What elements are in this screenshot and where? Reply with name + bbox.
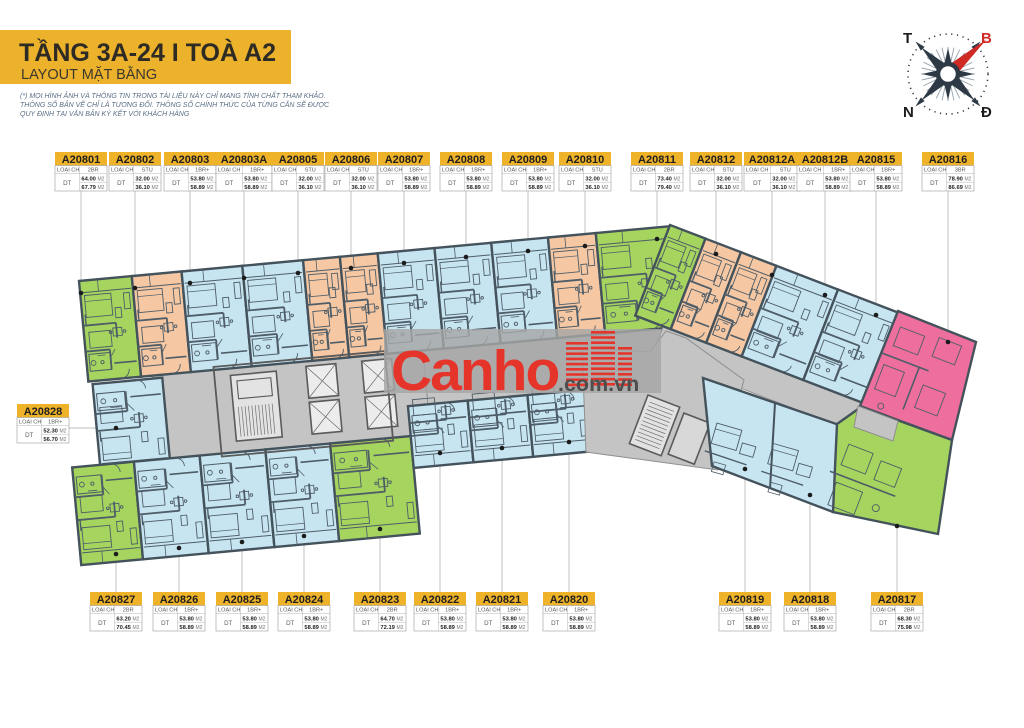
svg-text:32.00 M2: 32.00 M2 <box>716 176 739 182</box>
svg-text:DT: DT <box>510 180 518 187</box>
svg-text:LOẠI CH: LOẠI CH <box>274 168 296 174</box>
svg-text:A20812: A20812 <box>697 154 736 166</box>
svg-text:78.90 M2: 78.90 M2 <box>948 176 971 182</box>
svg-text:58.89 M2: 58.89 M2 <box>745 625 768 631</box>
svg-text:DT: DT <box>63 180 71 187</box>
svg-text:STU: STU <box>142 168 153 174</box>
svg-text:1BR+: 1BR+ <box>533 168 547 174</box>
svg-text:LOẠI CH: LOẠI CH <box>166 168 188 174</box>
svg-text:58.89 M2: 58.89 M2 <box>466 185 489 191</box>
svg-text:LOẠI CH: LOẠI CH <box>356 608 378 614</box>
svg-text:72.19 M2: 72.19 M2 <box>380 625 403 631</box>
svg-text:58.89 M2: 58.89 M2 <box>244 185 267 191</box>
svg-text:DT: DT <box>551 620 559 627</box>
svg-text:58.89 M2: 58.89 M2 <box>825 185 848 191</box>
svg-text:67.79 M2: 67.79 M2 <box>81 185 104 191</box>
svg-text:1BR+: 1BR+ <box>471 168 485 174</box>
svg-text:64.00 M2: 64.00 M2 <box>81 176 104 182</box>
svg-text:58.89 M2: 58.89 M2 <box>528 185 551 191</box>
svg-text:DT: DT <box>639 180 647 187</box>
svg-text:STU: STU <box>358 168 369 174</box>
svg-text:58.89 M2: 58.89 M2 <box>304 625 327 631</box>
svg-text:Canho: Canho <box>391 339 559 403</box>
svg-text:2BR: 2BR <box>123 608 134 614</box>
svg-text:1BR+: 1BR+ <box>831 168 845 174</box>
svg-text:A20818: A20818 <box>791 594 830 606</box>
svg-text:58.89 M2: 58.89 M2 <box>190 185 213 191</box>
svg-text:A20824: A20824 <box>285 594 324 606</box>
svg-text:A20820: A20820 <box>550 594 589 606</box>
svg-text:64.70 M2: 64.70 M2 <box>380 616 403 622</box>
svg-text:DT: DT <box>25 432 33 439</box>
svg-text:A20819: A20819 <box>726 594 765 606</box>
svg-text:73.40 M2: 73.40 M2 <box>657 176 680 182</box>
svg-text:A20821: A20821 <box>483 594 522 606</box>
svg-text:63.20 M2: 63.20 M2 <box>116 616 139 622</box>
svg-text:53.80 M2: 53.80 M2 <box>304 616 327 622</box>
svg-text:53.80 M2: 53.80 M2 <box>179 616 202 622</box>
svg-text:1BR+: 1BR+ <box>309 608 323 614</box>
svg-text:A20801: A20801 <box>62 154 101 166</box>
svg-text:2BR: 2BR <box>88 168 99 174</box>
svg-text:A20805: A20805 <box>279 154 318 166</box>
svg-text:LOẠI CH: LOẠI CH <box>327 168 349 174</box>
svg-text:THÔNG SỐ BẢN VẼ CHỈ LÀ TƯƠNG Đ: THÔNG SỐ BẢN VẼ CHỈ LÀ TƯƠNG ĐỐI. THÔNG … <box>20 100 330 109</box>
svg-text:A20825: A20825 <box>223 594 262 606</box>
svg-text:58.89 M2: 58.89 M2 <box>569 625 592 631</box>
svg-text:LOẠI CH: LOẠI CH <box>924 168 946 174</box>
svg-text:70.45 M2: 70.45 M2 <box>116 625 139 631</box>
svg-text:53.80 M2: 53.80 M2 <box>810 616 833 622</box>
svg-text:STU: STU <box>723 168 734 174</box>
svg-text:1BR+: 1BR+ <box>445 608 459 614</box>
svg-text:LOẠI CH: LOẠI CH <box>57 168 79 174</box>
svg-text:DT: DT <box>727 620 735 627</box>
svg-text:3BR: 3BR <box>955 168 966 174</box>
svg-text:1BR+: 1BR+ <box>507 608 521 614</box>
svg-text:DT: DT <box>567 180 575 187</box>
svg-text:DT: DT <box>858 180 866 187</box>
svg-text:32.00 M2: 32.00 M2 <box>298 176 321 182</box>
svg-text:A20823: A20823 <box>361 594 400 606</box>
svg-text:LOẠI CH: LOẠI CH <box>280 608 302 614</box>
svg-text:53.80 M2: 53.80 M2 <box>825 176 848 182</box>
svg-text:A20822: A20822 <box>421 594 460 606</box>
svg-text:DT: DT <box>117 180 125 187</box>
svg-text:1BR+: 1BR+ <box>195 168 209 174</box>
svg-text:53.80 M2: 53.80 M2 <box>242 616 265 622</box>
svg-text:T: T <box>903 30 912 47</box>
svg-text:DT: DT <box>753 180 761 187</box>
svg-text:DT: DT <box>484 620 492 627</box>
svg-text:1BR+: 1BR+ <box>184 608 198 614</box>
svg-text:DT: DT <box>448 180 456 187</box>
svg-text:DT: DT <box>698 180 706 187</box>
svg-text:LOẠI CH: LOẠI CH <box>416 608 438 614</box>
svg-text:1BR+: 1BR+ <box>750 608 764 614</box>
svg-text:LOẠI CH: LOẠI CH <box>504 168 526 174</box>
svg-text:LAYOUT MẶT BẰNG: LAYOUT MẶT BẰNG <box>21 65 157 83</box>
svg-text:LOẠI CH: LOẠI CH <box>19 420 41 426</box>
svg-text:LOẠI CH: LOẠI CH <box>852 168 874 174</box>
svg-text:32.00 M2: 32.00 M2 <box>135 176 158 182</box>
svg-text:32.00 M2: 32.00 M2 <box>351 176 374 182</box>
svg-text:58.89 M2: 58.89 M2 <box>440 625 463 631</box>
svg-text:36.10 M2: 36.10 M2 <box>135 185 158 191</box>
svg-text:LOẠI CH: LOẠI CH <box>545 608 567 614</box>
svg-text:N: N <box>903 104 914 121</box>
svg-text:A20808: A20808 <box>447 154 486 166</box>
svg-text:86.69 M2: 86.69 M2 <box>948 185 971 191</box>
svg-text:STU: STU <box>305 168 316 174</box>
svg-text:53.80 M2: 53.80 M2 <box>528 176 551 182</box>
svg-text:LOẠI CH: LOẠI CH <box>218 608 240 614</box>
svg-text:DT: DT <box>362 620 370 627</box>
svg-text:53.80 M2: 53.80 M2 <box>466 176 489 182</box>
svg-text:LOẠI CH: LOẠI CH <box>92 608 114 614</box>
svg-text:75.98 M2: 75.98 M2 <box>897 625 920 631</box>
svg-text:58.89 M2: 58.89 M2 <box>876 185 899 191</box>
svg-text:LOẠI CH: LOẠI CH <box>873 608 895 614</box>
svg-text:53.80 M2: 53.80 M2 <box>244 176 267 182</box>
svg-text:1BR+: 1BR+ <box>881 168 895 174</box>
svg-text:LOẠI CH: LOẠI CH <box>478 608 500 614</box>
svg-text:A20828: A20828 <box>24 406 63 418</box>
svg-text:A20811: A20811 <box>638 154 676 166</box>
svg-text:A20812A: A20812A <box>749 154 796 166</box>
svg-text:A20817: A20817 <box>878 594 917 606</box>
svg-text:36.10 M2: 36.10 M2 <box>351 185 374 191</box>
svg-text:1BR+: 1BR+ <box>250 168 264 174</box>
svg-text:52.30 M2: 52.30 M2 <box>43 428 66 434</box>
svg-text:A20803: A20803 <box>171 154 210 166</box>
svg-text:53.80 M2: 53.80 M2 <box>190 176 213 182</box>
svg-text:LOẠI CH: LOẠI CH <box>799 168 821 174</box>
svg-text:1BR+: 1BR+ <box>48 420 62 426</box>
svg-text:LOẠI CH: LOẠI CH <box>111 168 133 174</box>
svg-text:LOẠI CH: LOẠI CH <box>561 168 583 174</box>
svg-text:Đ: Đ <box>981 104 992 121</box>
svg-text:53.80 M2: 53.80 M2 <box>440 616 463 622</box>
svg-text:32.00 M2: 32.00 M2 <box>585 176 608 182</box>
svg-text:68.30 M2: 68.30 M2 <box>897 616 920 622</box>
svg-text:A20827: A20827 <box>97 594 136 606</box>
svg-text:2BR: 2BR <box>387 608 398 614</box>
svg-text:58.89 M2: 58.89 M2 <box>242 625 265 631</box>
svg-text:DT: DT <box>225 180 233 187</box>
svg-text:DT: DT <box>422 620 430 627</box>
svg-text:DT: DT <box>386 180 394 187</box>
svg-text:56.70 M2: 56.70 M2 <box>43 437 66 443</box>
svg-text:TẦNG 3A-24 I TOÀ A2: TẦNG 3A-24 I TOÀ A2 <box>19 38 276 67</box>
svg-text:1BR+: 1BR+ <box>574 608 588 614</box>
svg-text:36.10 M2: 36.10 M2 <box>298 185 321 191</box>
svg-text:(*) MỌI HÌNH ẢNH VÀ THÔNG TIN: (*) MỌI HÌNH ẢNH VÀ THÔNG TIN TRONG TÀI … <box>20 91 326 100</box>
svg-text:79.40 M2: 79.40 M2 <box>657 185 680 191</box>
svg-text:QUY ĐỊNH TẠI VĂN BẢN KÝ KẾT VỚ: QUY ĐỊNH TẠI VĂN BẢN KÝ KẾT VỚI KHÁCH HÀ… <box>20 109 190 118</box>
svg-text:STU: STU <box>780 168 791 174</box>
svg-text:1BR+: 1BR+ <box>815 608 829 614</box>
svg-text:32.00 M2: 32.00 M2 <box>772 176 795 182</box>
svg-text:A20826: A20826 <box>160 594 199 606</box>
svg-text:STU: STU <box>592 168 603 174</box>
svg-text:DT: DT <box>280 180 288 187</box>
svg-text:58.89 M2: 58.89 M2 <box>502 625 525 631</box>
svg-text:LOẠI CH: LOẠI CH <box>746 168 768 174</box>
svg-text:A20810: A20810 <box>566 154 605 166</box>
svg-text:58.89 M2: 58.89 M2 <box>179 625 202 631</box>
svg-text:58.89 M2: 58.89 M2 <box>404 185 427 191</box>
svg-text:58.89 M2: 58.89 M2 <box>810 625 833 631</box>
svg-text:A20806: A20806 <box>332 154 371 166</box>
svg-text:DT: DT <box>806 180 814 187</box>
svg-text:2BR: 2BR <box>664 168 675 174</box>
svg-text:LOẠI CH: LOẠI CH <box>442 168 464 174</box>
svg-text:A20807: A20807 <box>385 154 424 166</box>
svg-text:36.10 M2: 36.10 M2 <box>716 185 739 191</box>
svg-text:53.80 M2: 53.80 M2 <box>569 616 592 622</box>
svg-text:53.80 M2: 53.80 M2 <box>745 616 768 622</box>
svg-text:LOẠI CH: LOẠI CH <box>218 168 240 174</box>
svg-text:53.80 M2: 53.80 M2 <box>502 616 525 622</box>
svg-text:.com.vn: .com.vn <box>558 372 639 396</box>
svg-text:1BR+: 1BR+ <box>409 168 423 174</box>
svg-text:A20816: A20816 <box>929 154 968 166</box>
svg-text:DT: DT <box>333 180 341 187</box>
svg-text:A20815: A20815 <box>857 154 896 166</box>
svg-text:53.80 M2: 53.80 M2 <box>404 176 427 182</box>
svg-text:36.10 M2: 36.10 M2 <box>772 185 795 191</box>
svg-text:DT: DT <box>98 620 106 627</box>
svg-text:DT: DT <box>161 620 169 627</box>
svg-text:LOẠI CH: LOẠI CH <box>155 608 177 614</box>
svg-text:DT: DT <box>879 620 887 627</box>
svg-text:36.10 M2: 36.10 M2 <box>585 185 608 191</box>
svg-text:A20812B: A20812B <box>802 154 849 166</box>
svg-text:1BR+: 1BR+ <box>247 608 261 614</box>
svg-text:LOẠI CH: LOẠI CH <box>633 168 655 174</box>
svg-text:A20802: A20802 <box>116 154 155 166</box>
svg-text:LOẠI CH: LOẠI CH <box>380 168 402 174</box>
svg-text:LOẠI CH: LOẠI CH <box>786 608 808 614</box>
svg-text:DT: DT <box>224 620 232 627</box>
svg-text:LOẠI CH: LOẠI CH <box>692 168 714 174</box>
svg-text:DT: DT <box>930 180 938 187</box>
svg-text:B: B <box>981 30 992 47</box>
svg-text:2BR: 2BR <box>904 608 915 614</box>
svg-text:DT: DT <box>792 620 800 627</box>
svg-text:DT: DT <box>172 180 180 187</box>
svg-text:A20809: A20809 <box>509 154 548 166</box>
svg-text:A20803A: A20803A <box>221 154 268 166</box>
svg-text:DT: DT <box>286 620 294 627</box>
svg-text:53.80 M2: 53.80 M2 <box>876 176 899 182</box>
svg-text:LOẠI CH: LOẠI CH <box>721 608 743 614</box>
